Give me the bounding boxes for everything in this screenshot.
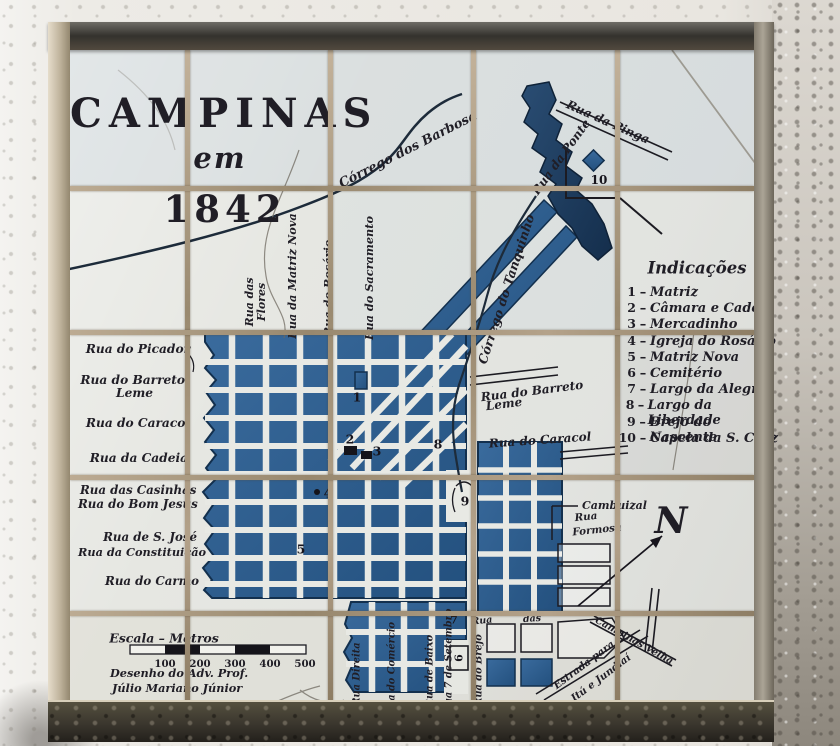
credit-line2: Júlio Mariano Júnior [112, 681, 242, 695]
marker-9-brejo-nascente: 9 [461, 494, 470, 509]
map-title: CAMPINAS [70, 90, 365, 137]
label-rua-formosa-line1: Rua [574, 510, 598, 524]
label-rua-das-flores-line2: Flores [255, 283, 268, 321]
scale-bar [130, 645, 306, 654]
legend-dash: – [636, 366, 650, 381]
grout-horizontal [70, 611, 754, 616]
marker-5-matriz-nova: 5 [297, 542, 306, 557]
city-blocks-east [478, 442, 562, 612]
legend-name: Matriz Nova [650, 350, 739, 365]
legend-dash: – [636, 431, 650, 446]
grout-vertical [185, 50, 190, 702]
label-rua-das-casinhas: Rua das Casinhas [80, 483, 195, 497]
grout-horizontal [70, 330, 754, 335]
map-title-em: em [70, 141, 370, 175]
city-blocks-main [203, 332, 466, 598]
frame-top [48, 22, 774, 50]
legend-dash: – [636, 415, 650, 430]
label-rua-da-constituicao: Rua da Constituição [78, 545, 200, 559]
label-rua-direita: Rua Direita [352, 642, 363, 705]
grout-vertical [615, 50, 620, 702]
chapel-diamond [583, 150, 604, 171]
map-title-year: 1842 [70, 187, 380, 231]
marker-8-largo-liberdade: 8 [434, 437, 443, 452]
label-rua-da-matriz-nova: Rua da Matriz Nova [285, 213, 299, 338]
legend-num: 9 [606, 414, 636, 429]
marker-2-camara: 2 [346, 432, 355, 447]
label-rua-do-picador: Rua do Picador [78, 342, 190, 356]
label-rua-de-baixo: Rua de Baixo [425, 635, 436, 707]
legend-num: 6 [606, 365, 636, 380]
label-rua-do-carmo: Rua do Carmo [84, 574, 199, 588]
credit-line1: Desenho do Adv. Prof. [110, 666, 248, 680]
legend-dash: – [636, 334, 650, 349]
legend-dash: – [636, 301, 650, 316]
label-rua-do-barreto: Rua do Barreto [73, 373, 185, 387]
legend-num: 10 [606, 430, 636, 445]
legend-dash: – [636, 285, 650, 300]
scale-title: Escala – Metros [109, 631, 219, 646]
legend-num: 1 [606, 284, 636, 299]
frame-bottom [48, 700, 774, 742]
matriz-block [355, 372, 367, 389]
north-letter: N [655, 500, 688, 542]
label-rua-da-cadeia: Rua da Cadeia [76, 451, 188, 465]
label-rua-das-flores: Rua das Flores [244, 277, 268, 326]
legend-name: Matriz [650, 285, 698, 300]
legend-title: Indicações [647, 259, 746, 278]
legend-num: 7 [606, 381, 636, 396]
label-rua-do-caracol: Rua do Caracol [78, 416, 190, 430]
legend-dash: – [636, 350, 650, 365]
marker-6-cemiterio: 6 [453, 654, 466, 662]
frame-left [48, 22, 70, 740]
legend-dash: – [636, 382, 650, 397]
camara-block [344, 446, 357, 455]
label-rua-do-sacramento: Rua do Sacramento [362, 216, 376, 340]
label-leme: Leme [73, 386, 153, 400]
mercadinho-block [361, 451, 372, 459]
grout-horizontal [70, 186, 754, 191]
rosario-dot [314, 489, 320, 495]
scale-tick-400: 400 [259, 658, 280, 670]
grout-vertical [471, 50, 476, 702]
legend-dash: – [634, 398, 647, 413]
label-rua-do-bom-jesus: Rua do Bom Jesus [78, 497, 197, 511]
photo-of-tiled-map: CAMPINAS em 1842 Córrego dos Barbosa Cór… [0, 0, 840, 746]
legend-num: 5 [606, 349, 636, 364]
scale-tick-500: 500 [294, 658, 315, 670]
frame-right [754, 22, 774, 740]
label-rua-de-s-jose: Rua de S. José [84, 530, 197, 544]
legend-name: Cemitério [650, 366, 722, 381]
grout-vertical [328, 50, 333, 702]
marker-1-matriz: 1 [353, 390, 362, 405]
marker-3-mercadinho: 3 [373, 444, 382, 459]
marker-10-capela-cruz: 10 [591, 173, 608, 187]
legend-num: 2 [606, 300, 636, 315]
legend-num: 8 [606, 397, 634, 412]
grout-horizontal [70, 475, 754, 480]
